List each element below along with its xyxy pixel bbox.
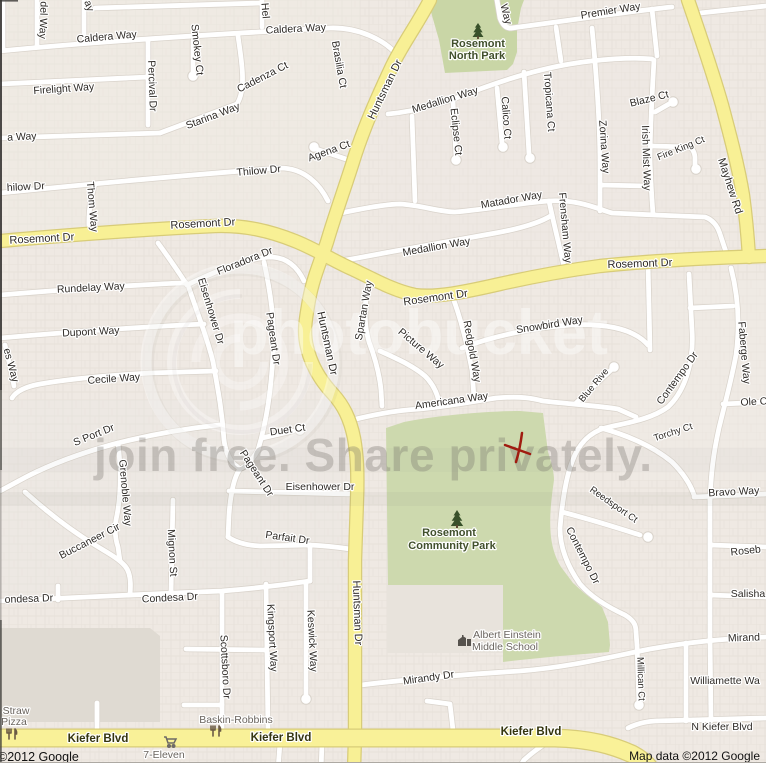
svg-text:ondesa Dr: ondesa Dr xyxy=(4,592,53,606)
svg-text:North Park: North Park xyxy=(449,50,506,62)
svg-text:Millican Ct: Millican Ct xyxy=(634,657,647,702)
svg-text:Ole C: Ole C xyxy=(740,395,766,408)
svg-text:Eisenhower Dr: Eisenhower Dr xyxy=(286,481,355,493)
svg-text:Pizza: Pizza xyxy=(1,716,27,728)
svg-text:Hel: Hel xyxy=(258,2,271,19)
svg-text:Middle School: Middle School xyxy=(472,641,538,653)
svg-text:©2012 Google: ©2012 Google xyxy=(0,750,79,764)
svg-text:join free. Share privately.: join free. Share privately. xyxy=(93,429,653,481)
svg-text:hilow Dr: hilow Dr xyxy=(7,180,46,194)
svg-text:N Kiefer Blvd: N Kiefer Blvd xyxy=(691,721,752,733)
svg-text:Map data ©2012 Google: Map data ©2012 Google xyxy=(629,749,760,763)
svg-text:a Way: a Way xyxy=(7,130,38,144)
svg-text:Rosemont: Rosemont xyxy=(422,527,476,539)
svg-text:Percival Dr: Percival Dr xyxy=(145,60,159,112)
svg-text:Mignon St: Mignon St xyxy=(165,529,179,577)
svg-text:Rosemont: Rosemont xyxy=(451,38,505,50)
svg-text:Albert Einstein: Albert Einstein xyxy=(473,629,541,641)
svg-text:Baskin-Robbins: Baskin-Robbins xyxy=(199,714,273,726)
svg-text:7-Eleven: 7-Eleven xyxy=(143,749,185,761)
svg-text:Williamette Wa: Williamette Wa xyxy=(690,675,760,687)
svg-text:photobucket: photobucket xyxy=(230,298,608,368)
svg-text:Kiefer Blvd: Kiefer Blvd xyxy=(68,733,129,745)
svg-text:Kiefer Blvd: Kiefer Blvd xyxy=(501,726,562,738)
svg-text:Rosemont Dr: Rosemont Dr xyxy=(607,257,673,271)
svg-text:Mirand: Mirand xyxy=(728,631,761,644)
svg-text:del Way: del Way xyxy=(36,1,49,40)
svg-text:Huntsman Dr: Huntsman Dr xyxy=(350,580,364,646)
svg-text:Community Park: Community Park xyxy=(408,540,496,552)
svg-text:Salisha: Salisha xyxy=(731,588,766,600)
svg-text:Kiefer Blvd: Kiefer Blvd xyxy=(251,732,312,744)
svg-text:Irish Mist Way: Irish Mist Way xyxy=(639,125,653,192)
